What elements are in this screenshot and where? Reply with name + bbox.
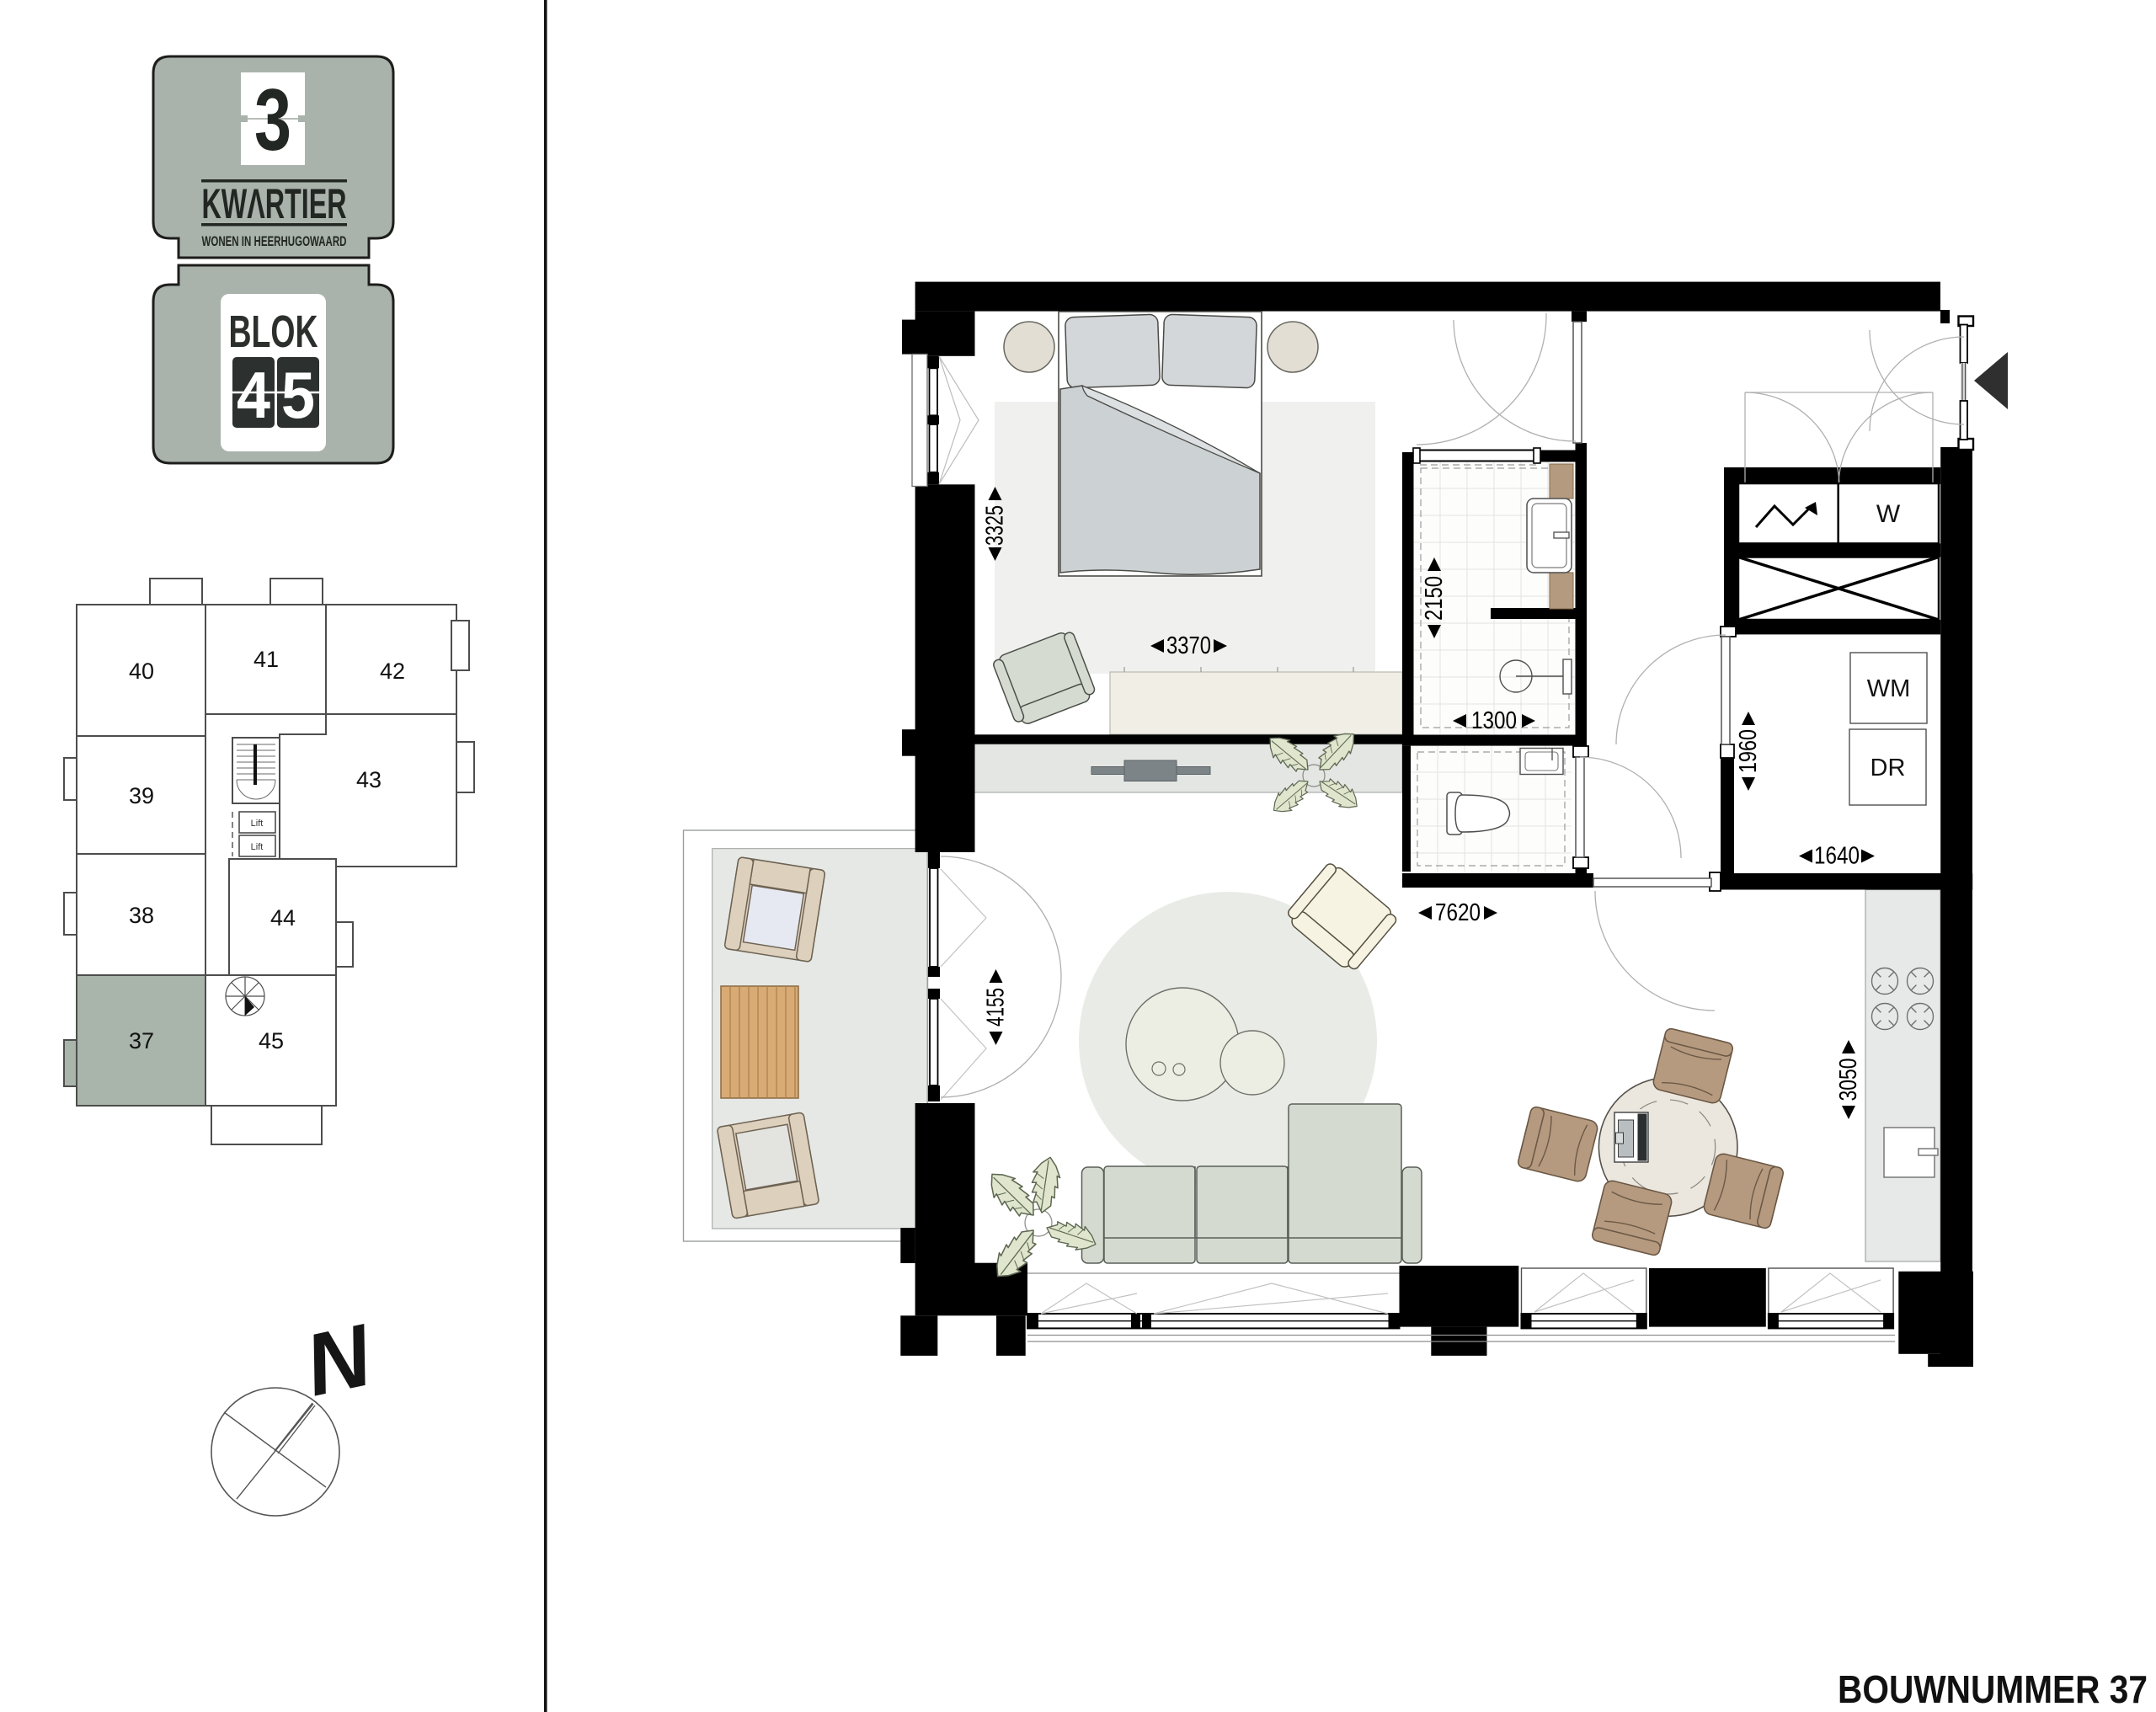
svg-text:44: 44 [270,905,296,931]
svg-text:4: 4 [237,358,270,432]
svg-text:3325: 3325 [982,505,1009,546]
svg-text:2150: 2150 [1421,576,1448,621]
svg-text:W: W [1876,500,1901,528]
svg-text:BLOK: BLOK [229,307,318,357]
svg-text:3370: 3370 [1166,632,1211,659]
svg-text:38: 38 [129,903,154,928]
svg-text:KWΛRTIER: KWΛRTIER [202,180,347,227]
svg-text:Lift: Lift [251,819,264,829]
svg-text:3050: 3050 [1835,1059,1862,1101]
svg-text:43: 43 [356,767,382,792]
svg-text:Lift: Lift [251,842,264,852]
svg-text:4155: 4155 [983,988,1010,1027]
svg-text:DR: DR [1870,755,1906,781]
svg-text:42: 42 [380,659,405,684]
svg-text:40: 40 [129,659,154,684]
svg-text:1300: 1300 [1471,707,1517,734]
svg-text:3: 3 [254,72,291,169]
svg-text:37: 37 [129,1028,154,1053]
svg-text:45: 45 [259,1028,284,1053]
svg-text:WM: WM [1867,675,1911,702]
svg-text:7620: 7620 [1435,899,1481,926]
svg-text:1640: 1640 [1814,843,1860,870]
svg-text:41: 41 [253,647,279,672]
svg-text:WONEN IN HEERHUGOWAARD: WONEN IN HEERHUGOWAARD [202,233,347,249]
svg-text:5: 5 [281,358,315,432]
svg-text:39: 39 [129,783,154,808]
svg-text:BOUWNUMMER 37: BOUWNUMMER 37 [1838,1667,2148,1711]
svg-text:1960: 1960 [1735,729,1762,773]
